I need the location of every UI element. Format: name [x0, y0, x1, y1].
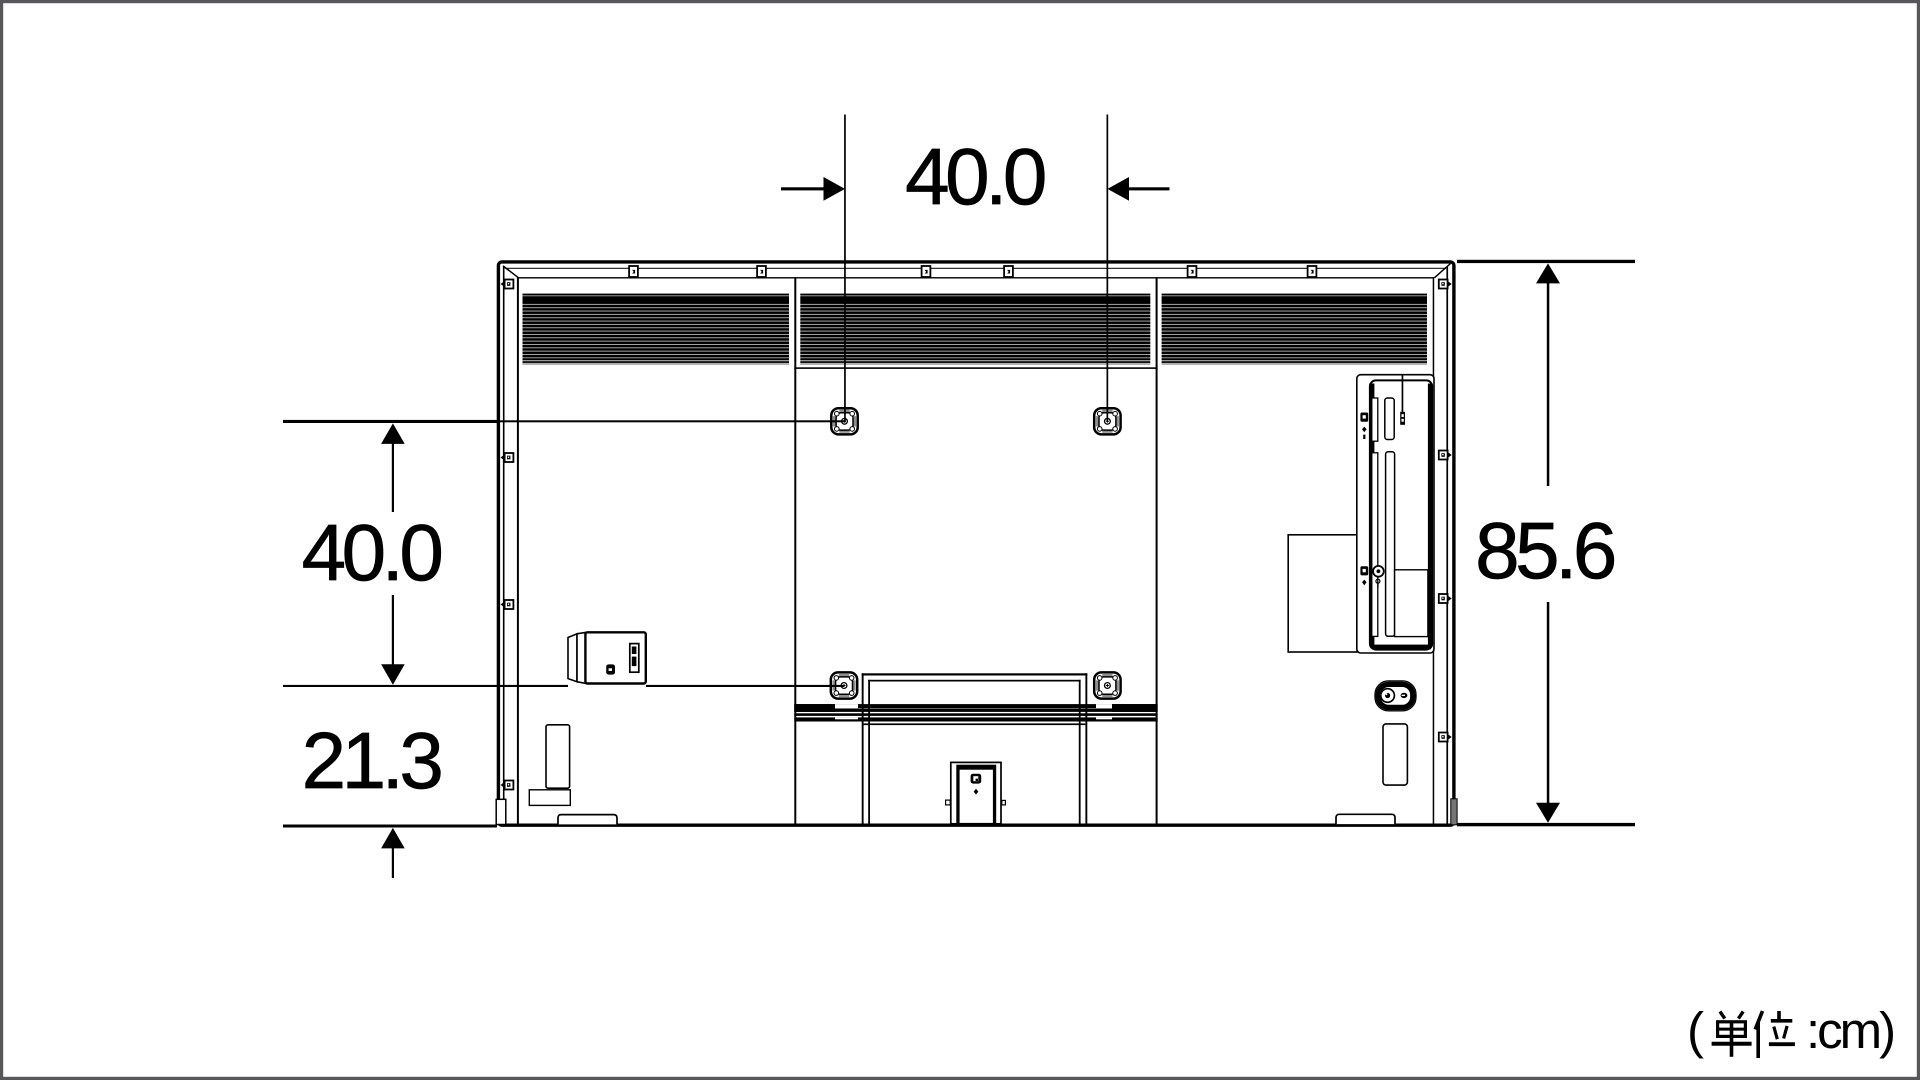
svg-text:40.0: 40.0 [905, 132, 1045, 221]
svg-text:(: ( [1687, 1002, 1704, 1059]
svg-text:85.6: 85.6 [1475, 506, 1614, 595]
svg-text::cm): :cm) [1806, 1002, 1893, 1059]
svg-text:40.0: 40.0 [302, 508, 442, 597]
svg-text:21.3: 21.3 [302, 716, 441, 805]
